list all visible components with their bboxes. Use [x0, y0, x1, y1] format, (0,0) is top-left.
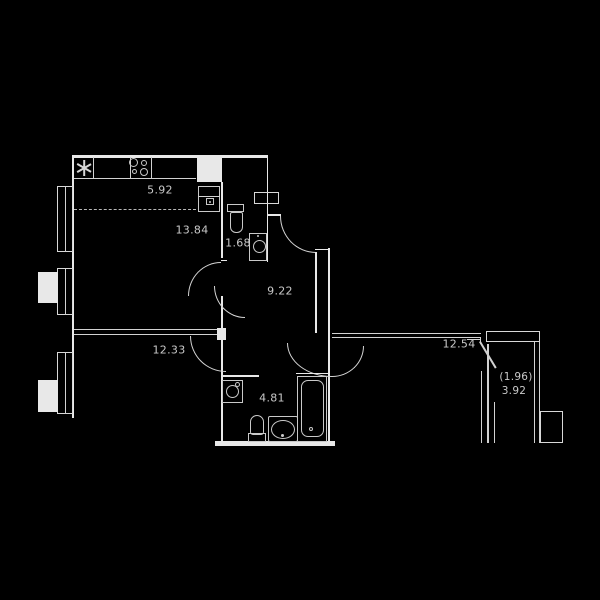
balcony-sill-line: [494, 402, 495, 443]
ac-unit-box: [540, 411, 563, 443]
bathtub-drain-icon: [309, 427, 313, 431]
counter-divider: [151, 157, 152, 178]
balcony-area-label: 3.92: [502, 385, 527, 397]
floor-plan-canvas: 5.92 13.84 1.68 9.22 12.33 12.54 (1.96) …: [0, 0, 600, 600]
door-arc-hall: [190, 336, 226, 372]
balcony-window-line: [487, 344, 488, 443]
bedroom-top-wall-line: [332, 333, 481, 334]
balcony-reduced-area-label: (1.96): [499, 371, 532, 383]
door-arc-bedroom: [332, 346, 364, 377]
partition-wall-line: [74, 334, 221, 335]
toilet-bowl-icon: [230, 212, 243, 233]
counter-divider: [93, 157, 94, 178]
stove-icon: [132, 169, 137, 174]
bathroom-top-wall-left: [221, 375, 259, 377]
fridge-icon: [76, 160, 92, 176]
stove-icon: [141, 160, 147, 166]
washer-knob-icon: [235, 382, 240, 387]
vent-box: [254, 192, 279, 204]
wall-right-cap: [315, 249, 329, 251]
balcony-door-jamb-h: [467, 339, 480, 340]
stove-icon: [140, 168, 148, 176]
kitchen-zone-area-label: 5.92: [147, 184, 173, 197]
toilet-tank-icon: [227, 204, 244, 212]
hall-area-label: 12.33: [153, 344, 186, 357]
wc-area-label: 1.68: [225, 237, 251, 250]
kitchen-faucet-dot: [209, 201, 211, 203]
window-mullion: [65, 186, 66, 252]
washer-knob-dot: [257, 235, 259, 237]
facade-pier-block: [38, 380, 58, 412]
wall-room-top: [267, 214, 281, 216]
balcony-right-wall-line: [534, 342, 535, 443]
toilet-tank-icon: [248, 433, 266, 442]
living-zone-area-label: 13.84: [176, 224, 209, 237]
balcony-top-wall: [486, 331, 540, 342]
vent-shaft-block: [197, 156, 222, 182]
wall-wc-left-upper: [221, 182, 223, 258]
washer-door-icon: [253, 240, 266, 253]
wall-top: [74, 155, 268, 158]
door-arc-wc: [214, 286, 245, 318]
window-mullion: [65, 352, 66, 414]
wall-wc-bottom-a: [221, 260, 227, 262]
window-mullion: [65, 268, 66, 315]
toilet-bowl-icon: [250, 415, 264, 435]
door-arc-room: [280, 216, 316, 253]
wall-end-stub: [217, 328, 226, 340]
wall-right-inner: [315, 252, 317, 333]
facade-pier-block: [38, 272, 58, 303]
kitchen-sink-edge: [198, 196, 220, 197]
zone-divider-dashed-line: [74, 209, 196, 210]
center-room-area-label: 9.22: [267, 285, 293, 298]
balcony-window-line: [481, 371, 482, 443]
stove-icon: [129, 158, 138, 167]
bathroom-area-label: 4.81: [259, 392, 285, 405]
partition-wall-line: [74, 329, 221, 330]
bathroom-top-wall-right: [296, 373, 329, 375]
sink-faucet-dot: [281, 434, 284, 437]
